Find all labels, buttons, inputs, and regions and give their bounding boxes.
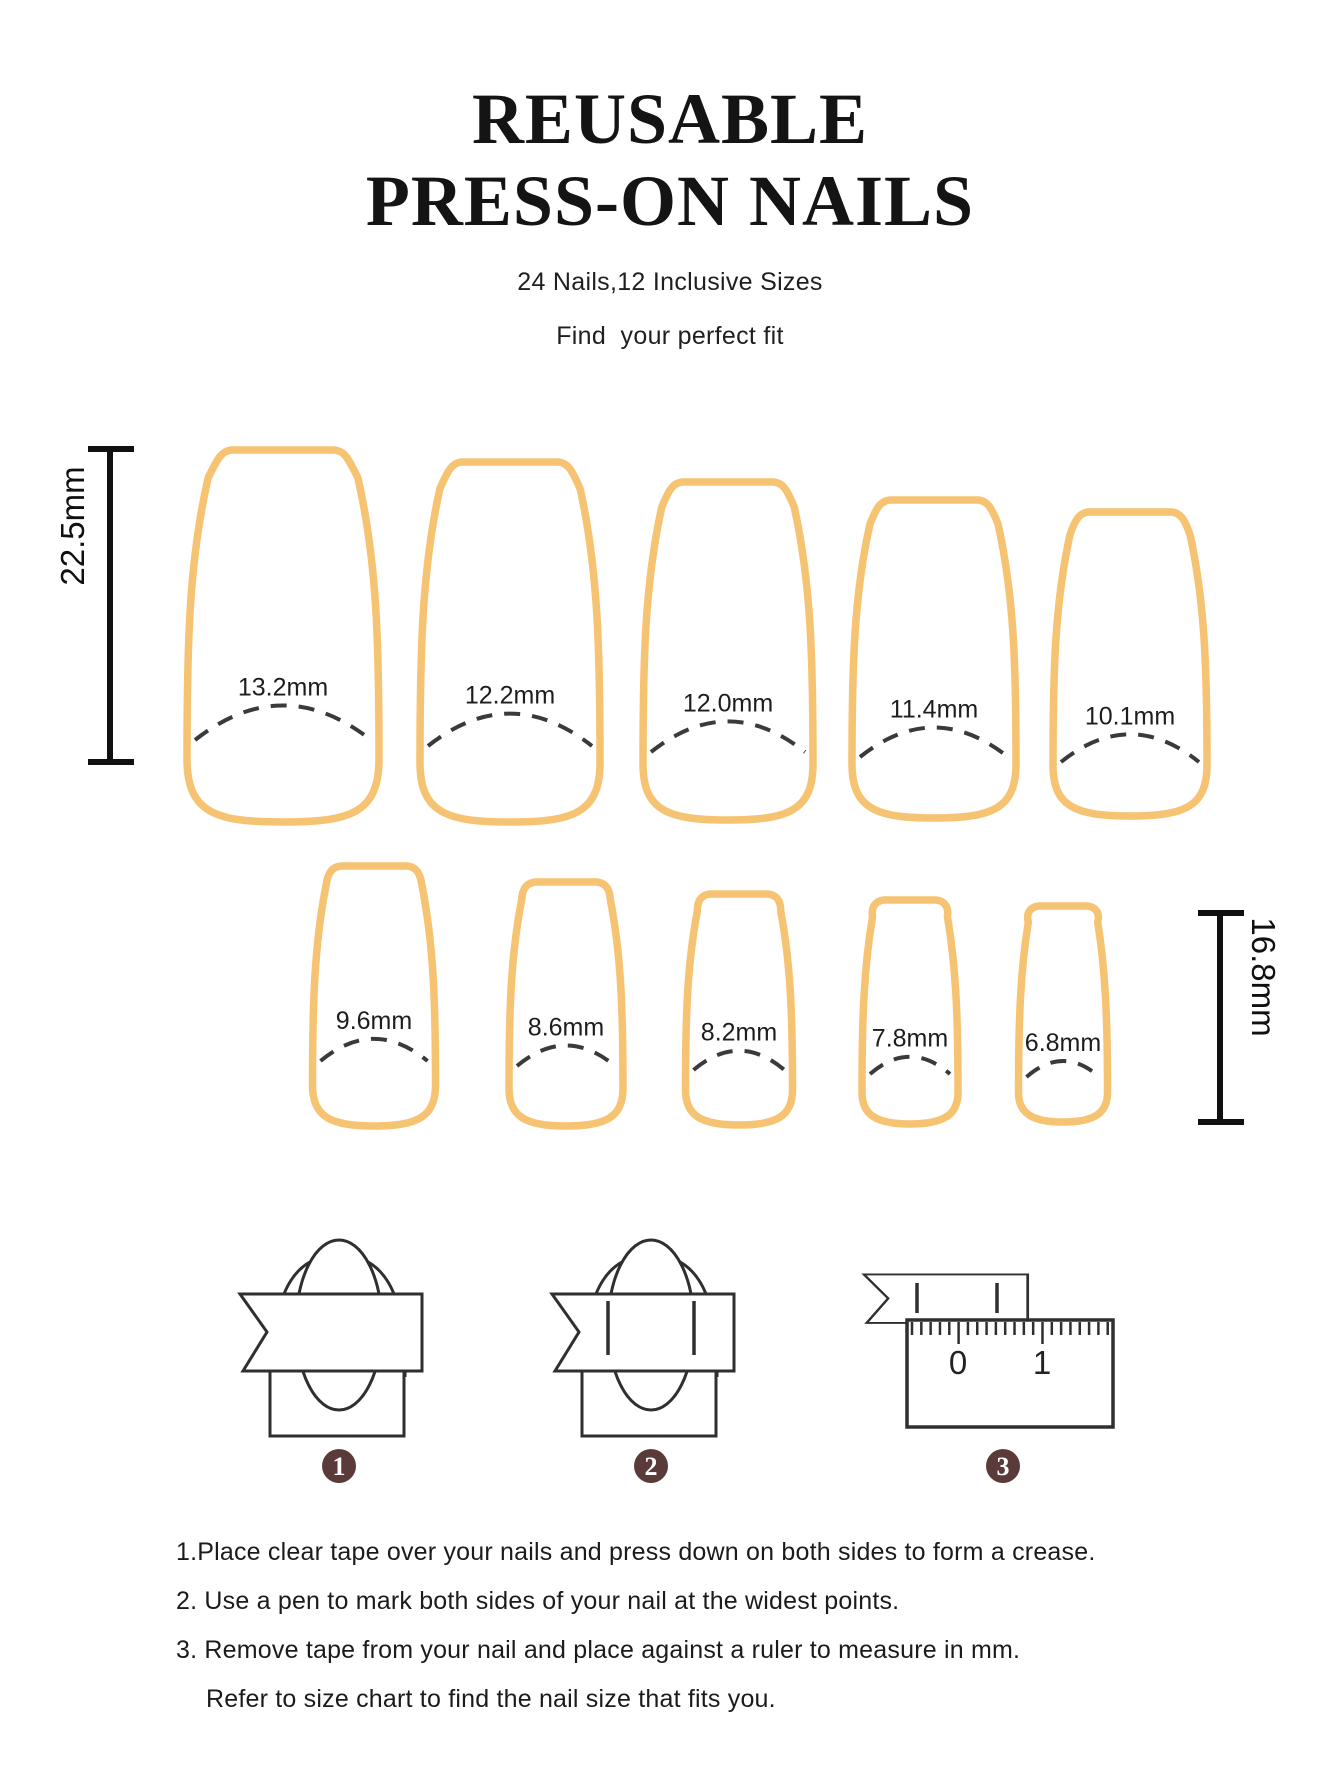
tape-ribbon: [552, 1294, 734, 1371]
badge-number: 2: [645, 1452, 658, 1481]
instruction-step-1: 1.Place clear tape over your nails and p…: [176, 1528, 1296, 1577]
title-line-2: PRESS-ON NAILS: [0, 160, 1340, 242]
right-ruler-label: 16.8mm: [1245, 917, 1282, 1036]
nail-width-arc: [860, 727, 1008, 757]
step-1-badge: 1: [322, 1449, 356, 1483]
header: REUSABLE PRESS-ON NAILS 24 Nails,12 Incl…: [0, 78, 1340, 351]
badge-number: 1: [333, 1452, 346, 1481]
ruler-number-0: 0: [949, 1344, 967, 1381]
nail-width-label: 13.2mm: [238, 673, 328, 701]
left-ruler-label: 22.5mm: [54, 466, 91, 585]
instruction-step-3: 3. Remove tape from your nail and place …: [176, 1626, 1296, 1675]
nail-size-chart: 13.2mm12.2mm12.0mm11.4mm10.1mm9.6mm8.6mm…: [187, 450, 1207, 1126]
nail-outline-10.1mm: [1053, 512, 1207, 816]
nail-outline-12.0mm: [643, 482, 813, 820]
tape-ribbon: [864, 1274, 1028, 1323]
badge-number: 3: [997, 1452, 1010, 1481]
nail-width-arc: [651, 721, 805, 752]
nail-width-arc: [1027, 1061, 1100, 1077]
nail-width-arc: [870, 1057, 950, 1074]
step3-illustration: 0 1: [864, 1274, 1113, 1427]
nail-width-arc: [517, 1045, 615, 1066]
nail-outline-8.6mm: [509, 882, 623, 1126]
nail-outline-13.2mm: [187, 450, 379, 822]
step1-illustration: [240, 1240, 422, 1436]
nail-width-arc: [321, 1039, 428, 1061]
instruction-step-2: 2. Use a pen to mark both sides of your …: [176, 1577, 1296, 1626]
subtitle: 24 Nails,12 Inclusive Sizes: [0, 268, 1340, 297]
nail-width-label: 11.4mm: [890, 695, 978, 723]
nail-outline-9.6mm: [313, 866, 436, 1126]
nail-width-arc: [428, 714, 592, 746]
title-line-1: REUSABLE: [0, 78, 1340, 160]
nail-width-label: 10.1mm: [1085, 702, 1175, 730]
nail-outline-8.2mm: [686, 894, 793, 1125]
nail-width-arc: [195, 705, 371, 740]
page-title: REUSABLE PRESS-ON NAILS: [0, 78, 1340, 242]
nail-width-arc: [694, 1051, 785, 1070]
tape-ribbon: [240, 1294, 422, 1371]
measuring-ruler: [907, 1320, 1113, 1427]
left-length-ruler: 22.5mm: [54, 449, 134, 762]
nail-width-arc: [1061, 734, 1199, 762]
step2-illustration: [552, 1240, 734, 1436]
tagline: Find your perfect fit: [0, 322, 1340, 351]
nail-width-label: 9.6mm: [336, 1007, 412, 1035]
nail-outline-11.4mm: [852, 500, 1016, 818]
step-3-badge: 3: [986, 1449, 1020, 1483]
step-badges: 1 2 3: [322, 1449, 1020, 1483]
nail-width-label: 8.6mm: [528, 1013, 604, 1041]
nail-outline-6.8mm: [1019, 906, 1108, 1122]
step-2-badge: 2: [634, 1449, 668, 1483]
nail-outline-7.8mm: [862, 900, 958, 1124]
nail-width-label: 12.0mm: [683, 689, 773, 717]
right-length-ruler: 16.8mm: [1198, 913, 1282, 1122]
nail-width-label: 8.2mm: [701, 1019, 777, 1047]
measuring-instructions: 1.Place clear tape over your nails and p…: [176, 1528, 1296, 1724]
instruction-step-3-continued: Refer to size chart to find the nail siz…: [176, 1675, 1296, 1724]
nail-width-label: 12.2mm: [465, 682, 555, 710]
nail-width-label: 7.8mm: [872, 1025, 948, 1053]
nail-width-label: 6.8mm: [1025, 1029, 1101, 1057]
nail-outline-12.2mm: [420, 462, 600, 822]
ruler-number-1: 1: [1033, 1344, 1051, 1381]
